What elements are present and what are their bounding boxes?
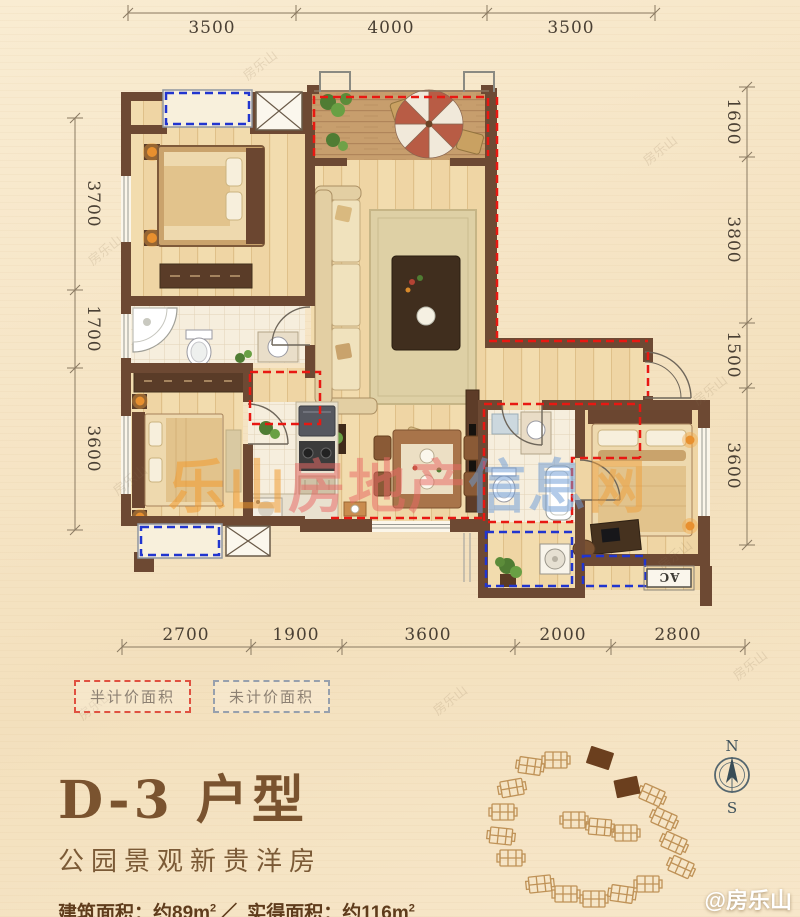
compass-north: N [725, 737, 738, 755]
dim-top-1: 4000 [367, 18, 414, 38]
dim-left-1: 1700 [83, 305, 103, 352]
area-separator: ／ [218, 903, 237, 917]
dim-top-2: 3500 [547, 18, 594, 38]
dim-left-2: 3600 [83, 425, 103, 472]
dim-bottom-4: 2800 [654, 625, 701, 645]
dimension-top: 3500 4000 3500 [123, 5, 660, 38]
compass: N S [715, 737, 749, 817]
area-line: 建筑面积：约89m2／实得面积：约116m2 [58, 898, 415, 917]
dimension-left: 3700 1700 3600 [67, 113, 103, 535]
bedroom-1 [143, 143, 264, 288]
dim-bottom-3: 2000 [539, 625, 586, 645]
ac-platform: AC [644, 566, 694, 590]
built-area-value: 约89m [153, 903, 210, 917]
built-area-sup: 2 [210, 903, 216, 915]
title-block: D-3 户型 公园景观新贵洋房 建筑面积：约89m2／实得面积：约116m2 全… [58, 758, 415, 917]
area-legend: 半计价面积 未计价面积 [74, 680, 330, 713]
dim-right-3: 3600 [723, 442, 743, 489]
actual-area-value: 约116m [342, 903, 409, 917]
dim-right-1: 3800 [723, 216, 743, 263]
corner-watermark: @房乐山 [705, 883, 792, 915]
actual-area-label: 实得面积： [247, 903, 342, 917]
built-area-label: 建筑面积： [58, 903, 153, 917]
dim-right-2: 1500 [723, 331, 743, 378]
actual-area-sup: 2 [409, 903, 415, 915]
dim-top-0: 3500 [188, 18, 235, 38]
unit-title: D-3 户型 [58, 758, 415, 833]
compass-south: S [727, 799, 737, 817]
floorplan-page: 3500 4000 3500 3700 1700 3600 [0, 0, 800, 917]
legend-half-priced: 半计价面积 [74, 680, 191, 713]
unit-subtitle: 公园景观新贵洋房 [58, 841, 415, 878]
dim-left-0: 3700 [83, 180, 103, 227]
dim-bottom-1: 1900 [272, 625, 319, 645]
dim-bottom-2: 3600 [404, 625, 451, 645]
dimension-right: 1600 3800 1500 3600 [723, 82, 755, 550]
master-bedroom [573, 410, 698, 558]
legend-unpriced: 未计价面积 [213, 680, 330, 713]
dim-right-0: 1600 [723, 98, 743, 145]
highlighted-buildings [586, 746, 641, 799]
terrace-rail [314, 72, 494, 92]
ac-label: AC [659, 570, 681, 584]
dim-bottom-0: 2700 [162, 625, 209, 645]
dimension-bottom: 2700 1900 3600 2000 2800 [117, 625, 750, 655]
site-plan: N S [486, 737, 749, 907]
